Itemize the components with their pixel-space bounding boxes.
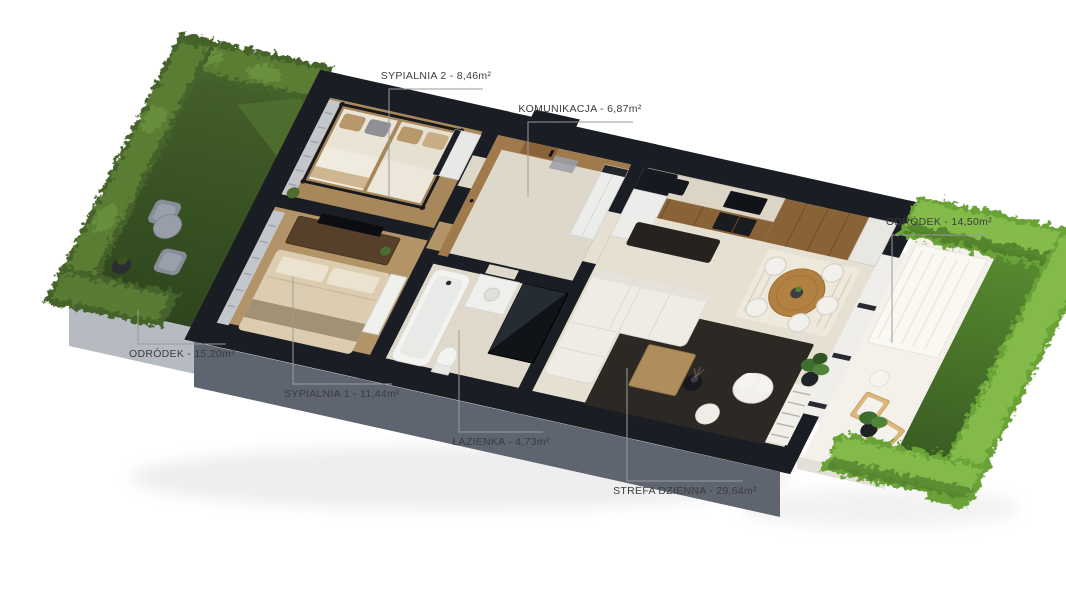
label-lazienka: ŁAZIENKA - 4,73m² (452, 436, 549, 448)
label-ogrodek-prawy: ODRÓDEK - 14,50m² (886, 216, 992, 228)
label-komunikacja: KOMUNIKACJA - 6,87m² (518, 103, 641, 115)
label-sypialnia-1: SYPIALNIA 1 - 11,44m² (284, 388, 400, 400)
floor-plan-render: SYPIALNIA 2 - 8,46m² KOMUNIKACJA - 6,87m… (0, 0, 1066, 600)
label-ogrodek-lewy: ODRÓDEK - 15,20m² (129, 348, 235, 360)
label-strefa-dzienna: STREFA DZIENNA - 29,64m² (613, 485, 757, 497)
floor-plan-illustration (0, 0, 1066, 600)
label-sypialnia-2: SYPIALNIA 2 - 8,46m² (381, 70, 491, 82)
